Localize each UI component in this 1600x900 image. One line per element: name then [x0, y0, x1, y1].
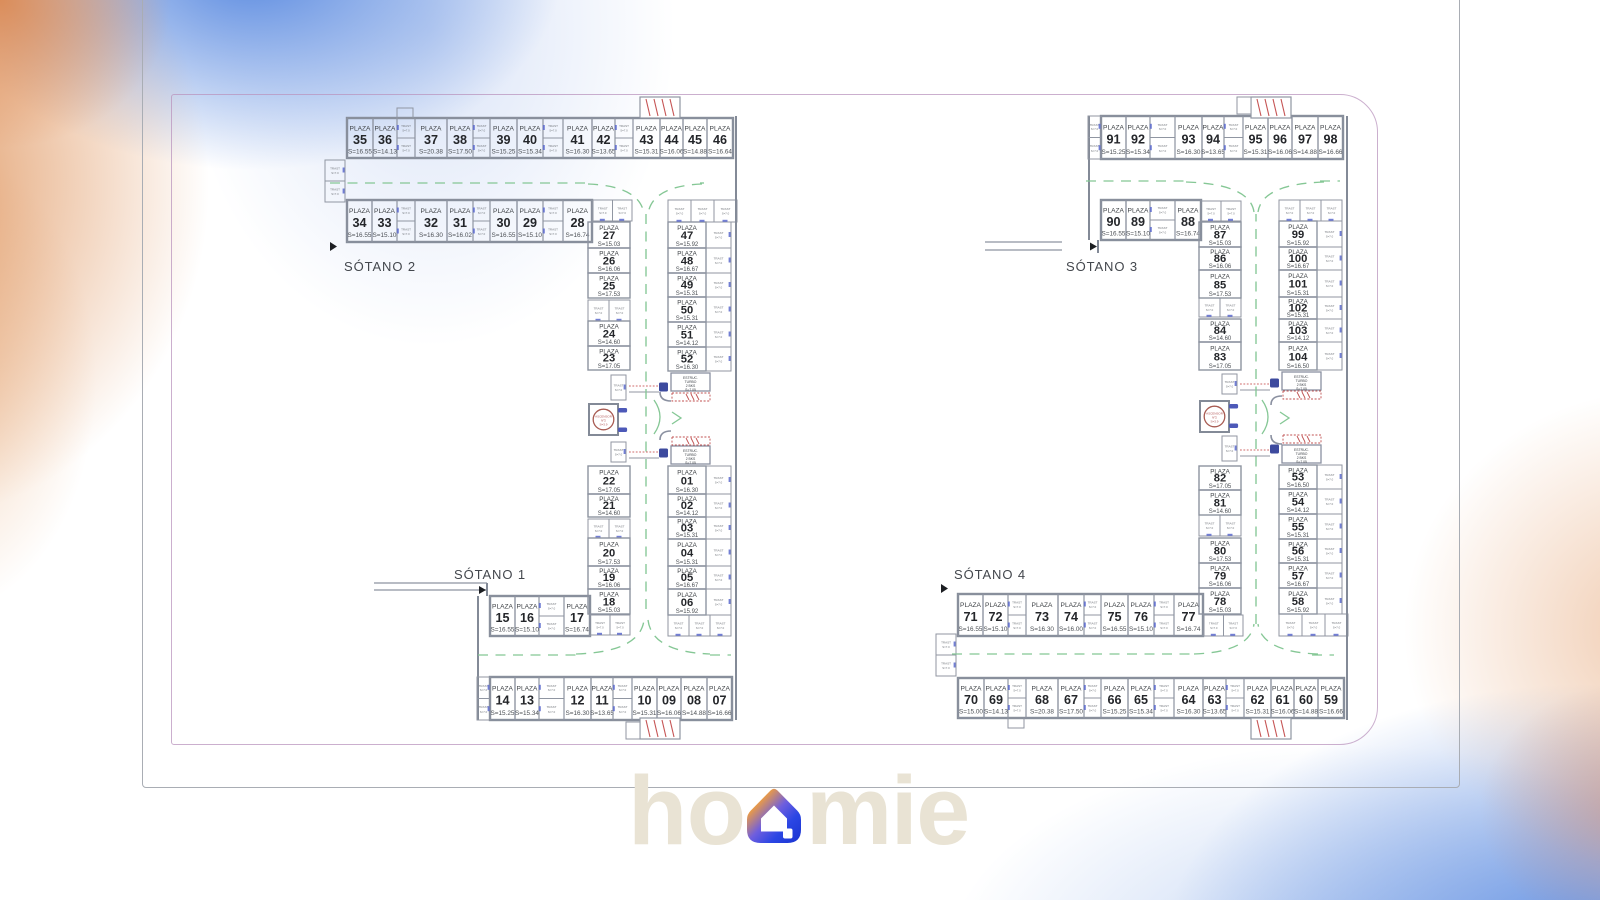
svg-text:TRAST: TRAST	[1325, 230, 1335, 234]
svg-text:S=7.0: S=7.0	[549, 129, 557, 133]
svg-text:S=15.03: S=15.03	[598, 242, 621, 248]
svg-text:TRAST: TRAST	[1325, 547, 1335, 551]
svg-text:TRAST: TRAST	[1226, 304, 1236, 308]
svg-text:S=17.05: S=17.05	[598, 364, 621, 370]
svg-text:34: 34	[352, 216, 366, 230]
svg-text:S=13.65: S=13.65	[592, 148, 616, 155]
svg-text:TRAST: TRAST	[617, 207, 627, 211]
svg-text:TRAST: TRAST	[1226, 207, 1236, 211]
svg-text:TRAST: TRAST	[1229, 123, 1239, 127]
svg-text:TRAST: TRAST	[1090, 123, 1100, 127]
svg-text:TRAST: TRAST	[941, 641, 951, 645]
svg-text:94: 94	[1206, 133, 1220, 147]
svg-text:S=7.0: S=7.0	[1226, 449, 1234, 453]
svg-text:TRAST: TRAST	[714, 598, 724, 602]
svg-text:S=15.34: S=15.34	[1129, 708, 1153, 715]
svg-text:PLAZA: PLAZA	[1178, 685, 1199, 692]
svg-text:S=7.0: S=7.0	[549, 149, 557, 153]
svg-text:PLAZA: PLAZA	[1131, 685, 1152, 692]
svg-text:S=15.10: S=15.10	[518, 232, 542, 239]
svg-text:69: 69	[989, 693, 1003, 707]
svg-text:S=7.0: S=7.0	[548, 627, 556, 631]
svg-text:78: 78	[1214, 596, 1226, 608]
svg-text:TRAST: TRAST	[1230, 684, 1240, 688]
svg-text:79: 79	[1214, 570, 1226, 582]
svg-text:S=7.0: S=7.0	[1326, 602, 1334, 606]
svg-text:S=16.67: S=16.67	[1287, 582, 1310, 588]
svg-text:PLAZA: PLAZA	[1061, 602, 1082, 609]
svg-text:55: 55	[1292, 521, 1304, 533]
svg-text:06: 06	[681, 597, 693, 609]
svg-text:TRAST: TRAST	[1325, 304, 1335, 308]
svg-text:PLAZA: PLAZA	[985, 602, 1006, 609]
svg-text:S=14.88: S=14.88	[1293, 149, 1317, 156]
svg-text:S=7.0: S=7.0	[596, 626, 604, 630]
svg-text:S=7.05: S=7.05	[685, 388, 696, 392]
svg-text:83: 83	[1214, 351, 1226, 363]
svg-text:S=7.0: S=7.0	[715, 603, 723, 607]
svg-text:25: 25	[603, 280, 615, 292]
svg-text:PLAZA: PLAZA	[1296, 685, 1317, 692]
svg-text:TRAST: TRAST	[330, 167, 340, 171]
svg-text:S=7.0: S=7.0	[480, 688, 488, 692]
svg-text:S=15.34: S=15.34	[515, 710, 539, 717]
svg-text:PLAZA: PLAZA	[567, 208, 588, 215]
svg-text:TRAST: TRAST	[1012, 684, 1022, 688]
svg-text:S=15.34: S=15.34	[518, 148, 542, 155]
svg-text:S=17.53: S=17.53	[1209, 292, 1232, 298]
svg-text:PLAZA: PLAZA	[592, 685, 613, 692]
svg-text:S=7.0: S=7.0	[478, 232, 486, 236]
svg-text:50: 50	[681, 304, 693, 316]
svg-text:S=7.0: S=7.0	[942, 645, 950, 649]
svg-text:62: 62	[1250, 693, 1264, 707]
svg-text:S=14.13: S=14.13	[984, 708, 1008, 715]
svg-text:PLAZA: PLAZA	[1104, 685, 1125, 692]
svg-text:TRAST: TRAST	[548, 207, 558, 211]
svg-text:S=16.06: S=16.06	[598, 267, 621, 273]
svg-text:TRAST: TRAST	[1332, 621, 1342, 625]
svg-text:S=7.0: S=7.0	[1326, 552, 1334, 556]
svg-text:S=7.0: S=7.0	[1333, 626, 1341, 630]
svg-text:S=16.06: S=16.06	[1209, 582, 1232, 588]
svg-text:S=7.0: S=7.0	[619, 688, 627, 692]
svg-text:S=16.55: S=16.55	[348, 148, 372, 155]
svg-text:PLAZA: PLAZA	[961, 685, 982, 692]
svg-text:PLAZA: PLAZA	[1061, 685, 1082, 692]
svg-text:S=15.03: S=15.03	[1209, 608, 1232, 614]
svg-text:S=15.00: S=15.00	[959, 708, 983, 715]
svg-text:TRAST: TRAST	[477, 207, 487, 211]
svg-text:TRAST: TRAST	[401, 207, 411, 211]
svg-text:S=15.31: S=15.31	[1246, 708, 1270, 715]
svg-text:S=7.0: S=7.0	[478, 211, 486, 215]
svg-text:64: 64	[1181, 693, 1195, 707]
svg-text:SÓTANO 1: SÓTANO 1	[454, 567, 526, 582]
svg-text:53: 53	[1292, 472, 1304, 484]
svg-text:PLAZA: PLAZA	[1032, 685, 1053, 692]
svg-text:S=16.06: S=16.06	[660, 148, 684, 155]
svg-text:S=7.0: S=7.0	[1159, 231, 1167, 235]
svg-text:TRAST: TRAST	[618, 684, 628, 688]
svg-text:S=7.0: S=7.0	[715, 286, 723, 290]
svg-text:S=7.0: S=7.0	[715, 310, 723, 314]
svg-text:74: 74	[1064, 610, 1078, 624]
svg-text:S=16.30: S=16.30	[676, 365, 699, 371]
svg-text:PLAZA: PLAZA	[493, 208, 514, 215]
svg-text:S=7.0: S=7.0	[1286, 211, 1294, 215]
svg-text:47: 47	[681, 230, 693, 242]
svg-text:37: 37	[424, 133, 438, 147]
svg-text:97: 97	[1298, 133, 1312, 147]
svg-text:S=7.0: S=7.0	[1326, 259, 1334, 263]
svg-text:12: 12	[570, 694, 584, 708]
svg-text:S=15.31: S=15.31	[633, 710, 657, 717]
svg-text:43: 43	[639, 133, 653, 147]
svg-text:TRAST: TRAST	[595, 621, 605, 625]
svg-text:S=7.0: S=7.0	[715, 261, 723, 265]
svg-text:S=7.0: S=7.0	[548, 710, 556, 714]
svg-text:S=17.05: S=17.05	[1209, 484, 1232, 490]
svg-text:TRAST: TRAST	[548, 144, 558, 148]
svg-text:10: 10	[637, 694, 651, 708]
svg-text:S=7.0: S=7.0	[1160, 626, 1168, 630]
svg-text:PLAZA: PLAZA	[636, 125, 657, 132]
svg-text:S=7.0: S=7.0	[715, 529, 723, 533]
svg-text:TRAST: TRAST	[1206, 207, 1216, 211]
svg-text:TRAST: TRAST	[1309, 621, 1319, 625]
svg-text:35: 35	[353, 133, 367, 147]
svg-text:S=16.74: S=16.74	[1176, 230, 1200, 237]
svg-text:TRAST: TRAST	[1012, 704, 1022, 708]
svg-text:S=7.0: S=7.0	[715, 553, 723, 557]
svg-text:TRAST: TRAST	[547, 684, 557, 688]
svg-text:S=14.60: S=14.60	[598, 340, 621, 346]
svg-text:S=15.31: S=15.31	[635, 148, 659, 155]
svg-text:S=16.30: S=16.30	[1030, 626, 1054, 633]
svg-text:S=7.0: S=7.0	[619, 211, 627, 215]
svg-text:TRAST: TRAST	[716, 622, 726, 626]
svg-text:S=7.0: S=7.0	[1013, 626, 1021, 630]
svg-text:44: 44	[664, 133, 678, 147]
svg-text:mie: mie	[806, 756, 969, 865]
svg-text:PLAZA: PLAZA	[492, 685, 513, 692]
svg-text:68: 68	[1035, 693, 1049, 707]
svg-text:S=7.0: S=7.0	[1326, 309, 1334, 313]
svg-text:SÓTANO 4: SÓTANO 4	[954, 567, 1026, 582]
svg-text:17: 17	[570, 611, 584, 625]
svg-text:PLAZA: PLAZA	[1178, 124, 1199, 131]
svg-text:TRAST: TRAST	[1159, 684, 1169, 688]
svg-text:TRAST: TRAST	[1325, 352, 1335, 356]
svg-text:TRAST: TRAST	[714, 257, 724, 261]
svg-text:70: 70	[964, 693, 978, 707]
svg-text:S=7.0: S=7.0	[331, 192, 339, 196]
svg-text:TRAST: TRAST	[714, 331, 724, 335]
svg-text:18: 18	[603, 596, 615, 608]
svg-text:SÓTANO 3: SÓTANO 3	[1066, 259, 1138, 274]
svg-text:PLAZA: PLAZA	[349, 208, 370, 215]
svg-text:S=7.0: S=7.0	[1089, 605, 1097, 609]
svg-text:07: 07	[712, 694, 726, 708]
svg-text:51: 51	[681, 329, 693, 341]
svg-text:73: 73	[1035, 610, 1049, 624]
svg-text:27: 27	[603, 230, 615, 242]
svg-text:S=7.0: S=7.0	[1160, 605, 1168, 609]
svg-text:PLAZA: PLAZA	[709, 685, 730, 692]
svg-text:TRAST: TRAST	[714, 574, 724, 578]
svg-text:PLAZA: PLAZA	[1321, 685, 1342, 692]
svg-text:S=7.0: S=7.0	[615, 453, 623, 457]
svg-text:S=17.53: S=17.53	[598, 560, 621, 566]
svg-text:S=7.0: S=7.0	[699, 212, 707, 216]
svg-text:S=14.88: S=14.88	[682, 710, 706, 717]
svg-text:96: 96	[1273, 133, 1287, 147]
svg-text:PLAZA: PLAZA	[960, 602, 981, 609]
svg-text:TRAST: TRAST	[594, 525, 604, 529]
svg-text:TRAST: TRAST	[1158, 144, 1168, 148]
svg-text:S=7.0: S=7.0	[1206, 308, 1214, 312]
svg-text:TRAST: TRAST	[1159, 601, 1169, 605]
svg-text:TRAST: TRAST	[1327, 207, 1337, 211]
svg-text:ho: ho	[628, 756, 746, 865]
svg-text:PLAZA: PLAZA	[421, 208, 442, 215]
svg-text:TRAST: TRAST	[1325, 280, 1335, 284]
svg-text:77: 77	[1181, 610, 1195, 624]
svg-text:S=20.38: S=20.38	[419, 148, 443, 155]
svg-text:80: 80	[1214, 545, 1226, 557]
svg-text:S=15.31: S=15.31	[1287, 533, 1310, 539]
svg-text:66: 66	[1107, 693, 1121, 707]
svg-text:99: 99	[1292, 229, 1304, 241]
svg-text:58: 58	[1292, 596, 1304, 608]
svg-text:30: 30	[496, 216, 510, 230]
svg-text:PLAZA: PLAZA	[593, 125, 614, 132]
svg-text:TRAST: TRAST	[1159, 704, 1169, 708]
svg-text:S=15.25: S=15.25	[1102, 149, 1126, 156]
svg-text:PLAZA: PLAZA	[375, 125, 396, 132]
svg-text:S=7.0: S=7.0	[1227, 212, 1235, 216]
svg-text:S=7.0: S=7.0	[1159, 211, 1167, 215]
svg-text:TRAST: TRAST	[547, 705, 557, 709]
svg-text:S=7.0: S=7.0	[1326, 576, 1334, 580]
svg-text:S=15.31: S=15.31	[676, 316, 699, 322]
svg-text:59: 59	[1324, 693, 1338, 707]
svg-text:S=7.0: S=7.0	[1231, 709, 1239, 713]
svg-text:S=7.0: S=7.0	[549, 232, 557, 236]
svg-text:S=16.30: S=16.30	[1177, 708, 1201, 715]
svg-text:S=17.53: S=17.53	[598, 292, 621, 298]
svg-text:S=14.60: S=14.60	[1209, 336, 1232, 342]
svg-text:S=7.0: S=7.0	[722, 212, 730, 216]
svg-text:26: 26	[603, 255, 615, 267]
svg-text:S=15.34: S=15.34	[1126, 149, 1150, 156]
svg-text:81: 81	[1214, 497, 1226, 509]
svg-text:PLAZA: PLAZA	[1178, 207, 1199, 214]
svg-text:TRAST: TRAST	[401, 124, 411, 128]
svg-text:S=15.92: S=15.92	[1287, 608, 1310, 614]
svg-text:TRAST: TRAST	[1228, 622, 1238, 626]
svg-text:S=7.0: S=7.0	[402, 211, 410, 215]
svg-text:41: 41	[570, 133, 584, 147]
svg-text:TRAST: TRAST	[1012, 622, 1022, 626]
svg-text:S=16.55: S=16.55	[959, 626, 983, 633]
svg-text:S=7.0: S=7.0	[1231, 689, 1239, 693]
svg-text:61: 61	[1275, 693, 1289, 707]
svg-text:S=7.0: S=7.0	[1089, 709, 1097, 713]
svg-text:S=16.55: S=16.55	[348, 232, 372, 239]
svg-text:PLAZA: PLAZA	[684, 685, 705, 692]
svg-text:S=16.64: S=16.64	[708, 148, 732, 155]
svg-text:TRAST: TRAST	[401, 144, 411, 148]
svg-text:S=15.92: S=15.92	[676, 242, 699, 248]
svg-text:04: 04	[681, 548, 694, 560]
svg-text:42: 42	[596, 133, 610, 147]
svg-text:S=15.25: S=15.25	[492, 148, 516, 155]
svg-text:TRAST: TRAST	[1325, 523, 1335, 527]
svg-text:S=16.00: S=16.00	[1059, 626, 1083, 633]
svg-text:S=7.0: S=7.0	[1091, 149, 1099, 153]
svg-text:S=7.0: S=7.0	[1160, 689, 1168, 693]
svg-text:PLAZA: PLAZA	[450, 208, 471, 215]
svg-text:60: 60	[1299, 693, 1313, 707]
svg-text:TRAST: TRAST	[547, 622, 557, 626]
svg-text:S=15.31: S=15.31	[1287, 313, 1310, 319]
svg-text:PLAZA: PLAZA	[634, 685, 655, 692]
svg-text:92: 92	[1131, 133, 1145, 147]
svg-text:TRAST: TRAST	[598, 207, 608, 211]
svg-text:S=7.0: S=7.0	[1013, 605, 1021, 609]
svg-text:75: 75	[1107, 610, 1121, 624]
svg-text:TRAST: TRAST	[1088, 684, 1098, 688]
svg-text:TRAST: TRAST	[615, 621, 625, 625]
svg-text:101: 101	[1289, 279, 1308, 291]
svg-text:S=3.9: S=3.9	[1211, 420, 1219, 424]
svg-text:S=16.55: S=16.55	[492, 232, 516, 239]
svg-text:88: 88	[1181, 215, 1195, 229]
svg-text:31: 31	[453, 216, 467, 230]
svg-text:PLAZA: PLAZA	[1128, 124, 1149, 131]
svg-text:TRAST: TRAST	[1325, 327, 1335, 331]
svg-text:S=7.0: S=7.0	[1089, 626, 1097, 630]
svg-text:48: 48	[681, 255, 693, 267]
svg-text:TRAST: TRAST	[548, 228, 558, 232]
svg-text:S=13.65: S=13.65	[1201, 149, 1225, 156]
svg-text:S=14.12: S=14.12	[1287, 508, 1310, 514]
svg-text:S=7.0: S=7.0	[715, 578, 723, 582]
svg-text:TRAST: TRAST	[714, 281, 724, 285]
svg-text:TRAST: TRAST	[1088, 704, 1098, 708]
svg-text:72: 72	[988, 610, 1002, 624]
svg-text:S=7.0: S=7.0	[1326, 527, 1334, 531]
svg-text:PLAZA: PLAZA	[1032, 602, 1053, 609]
svg-text:S=7.0: S=7.0	[615, 388, 623, 392]
svg-text:95: 95	[1248, 133, 1262, 147]
svg-text:76: 76	[1134, 610, 1148, 624]
svg-text:PLAZA: PLAZA	[567, 685, 588, 692]
svg-text:20: 20	[603, 547, 615, 559]
svg-text:15: 15	[495, 611, 509, 625]
svg-text:PLAZA: PLAZA	[1178, 602, 1199, 609]
svg-text:S=16.66: S=16.66	[1319, 149, 1343, 156]
svg-text:TRAST: TRAST	[479, 705, 489, 709]
svg-text:54: 54	[1292, 496, 1305, 508]
svg-text:S=7.0: S=7.0	[478, 129, 486, 133]
svg-text:PLAZA: PLAZA	[520, 125, 541, 132]
svg-text:13: 13	[520, 694, 534, 708]
svg-text:S=15.03: S=15.03	[598, 608, 621, 614]
svg-text:TRAST: TRAST	[695, 622, 705, 626]
svg-text:TRAST: TRAST	[615, 525, 625, 529]
svg-text:TRAST: TRAST	[1158, 226, 1168, 230]
svg-text:PLAZA: PLAZA	[986, 685, 1007, 692]
svg-text:S=16.30: S=16.30	[566, 148, 590, 155]
svg-text:S=7.05: S=7.05	[685, 461, 696, 465]
svg-text:S=15.25: S=15.25	[1103, 708, 1127, 715]
svg-text:TRAST: TRAST	[477, 144, 487, 148]
svg-text:39: 39	[496, 133, 510, 147]
svg-text:PLAZA: PLAZA	[1128, 207, 1149, 214]
svg-text:S=7.0: S=7.0	[595, 311, 603, 315]
svg-text:S=7.0: S=7.0	[676, 212, 684, 216]
svg-text:S=7.0: S=7.0	[1159, 149, 1167, 153]
svg-text:67: 67	[1064, 693, 1078, 707]
svg-text:S=14.88: S=14.88	[683, 148, 707, 155]
svg-text:S=16.30: S=16.30	[1177, 149, 1201, 156]
svg-text:S=7.0: S=7.0	[1307, 211, 1315, 215]
svg-text:S=7.0: S=7.0	[717, 626, 725, 630]
svg-text:S=7.0: S=7.0	[616, 311, 624, 315]
svg-text:TRAST: TRAST	[614, 448, 624, 452]
svg-text:S=7.0: S=7.0	[715, 236, 723, 240]
svg-text:S=17.50: S=17.50	[1059, 708, 1083, 715]
svg-text:PLAZA: PLAZA	[1103, 207, 1124, 214]
svg-text:TRAST: TRAST	[1088, 601, 1098, 605]
svg-text:S=16.06: S=16.06	[1271, 708, 1295, 715]
svg-text:TRAST: TRAST	[1225, 380, 1235, 384]
svg-text:S=7.0: S=7.0	[1013, 689, 1021, 693]
svg-text:S=15.10: S=15.10	[1129, 626, 1153, 633]
svg-text:PLAZA: PLAZA	[1104, 602, 1125, 609]
svg-text:S=7.0: S=7.0	[402, 232, 410, 236]
svg-text:TRAST: TRAST	[714, 355, 724, 359]
svg-text:S=15.10: S=15.10	[373, 232, 397, 239]
svg-text:PLAZA: PLAZA	[567, 603, 588, 610]
svg-text:S=16.55: S=16.55	[1103, 626, 1127, 633]
svg-text:S=7.0: S=7.0	[715, 506, 723, 510]
svg-text:PLAZA: PLAZA	[685, 125, 706, 132]
svg-text:S=14.12: S=14.12	[1287, 336, 1310, 342]
svg-text:PLAZA: PLAZA	[1272, 685, 1293, 692]
svg-text:S=3.9: S=3.9	[600, 423, 608, 427]
svg-text:S=7.0: S=7.0	[1091, 127, 1099, 131]
svg-text:S=16.06: S=16.06	[1209, 264, 1232, 270]
svg-text:TRAST: TRAST	[675, 207, 685, 211]
svg-text:PLAZA: PLAZA	[1245, 124, 1266, 131]
svg-text:S=7.0: S=7.0	[1326, 502, 1334, 506]
svg-text:SÓTANO 2: SÓTANO 2	[344, 259, 416, 274]
svg-text:S=16.74: S=16.74	[566, 232, 590, 239]
svg-text:S=14.13: S=14.13	[373, 148, 397, 155]
svg-text:S=15.92: S=15.92	[1287, 241, 1310, 247]
svg-text:S=7.0: S=7.0	[715, 481, 723, 485]
svg-text:TRAST: TRAST	[698, 207, 708, 211]
svg-text:S=16.30: S=16.30	[676, 488, 699, 494]
svg-text:S=7.0: S=7.0	[616, 529, 624, 533]
svg-text:TRAST: TRAST	[714, 549, 724, 553]
svg-text:TRAST: TRAST	[1209, 622, 1219, 626]
svg-text:TRAST: TRAST	[1205, 304, 1215, 308]
